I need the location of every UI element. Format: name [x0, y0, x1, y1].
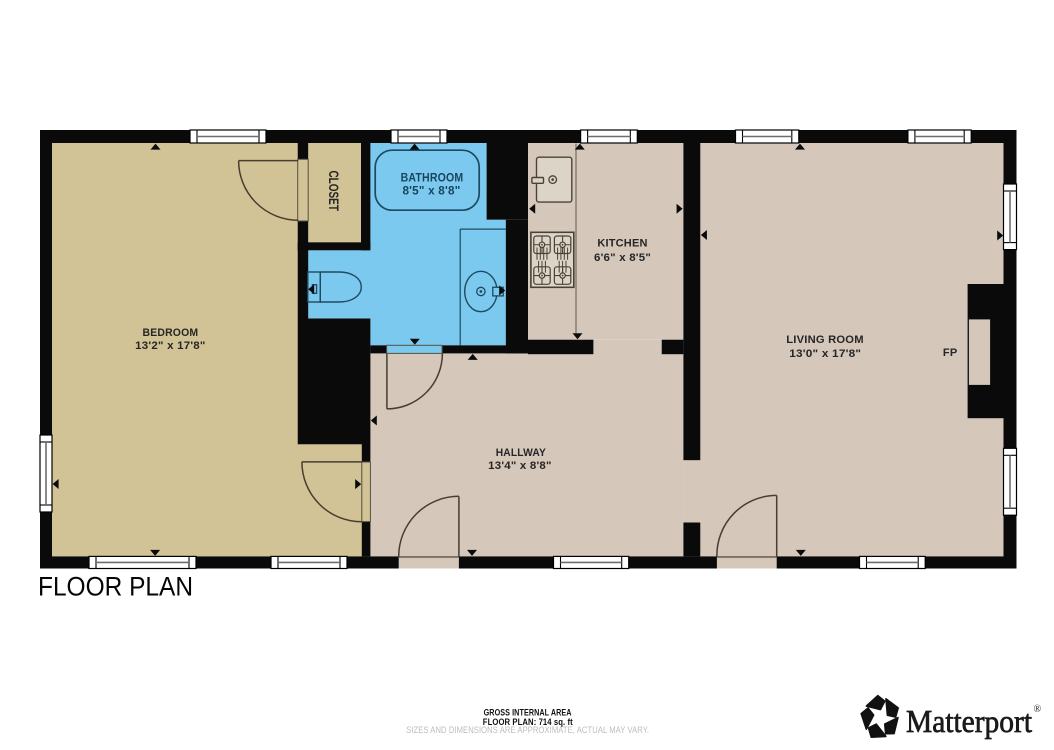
svg-text:13'2" x 17'8": 13'2" x 17'8": [135, 340, 205, 352]
svg-text:13'4" x 8'8": 13'4" x 8'8": [488, 460, 552, 472]
svg-text:FP: FP: [943, 347, 957, 359]
svg-text:LIVING ROOM: LIVING ROOM: [786, 334, 864, 346]
svg-text:6'6" x 8'5": 6'6" x 8'5": [594, 252, 651, 264]
svg-text:SIZES AND DIMENSIONS ARE APPRO: SIZES AND DIMENSIONS ARE APPROXIMATE, AC…: [406, 725, 649, 735]
svg-text:BEDROOM: BEDROOM: [143, 327, 199, 339]
svg-text:HALLWAY: HALLWAY: [496, 447, 547, 459]
svg-text:13'0" x 17'8": 13'0" x 17'8": [789, 348, 861, 360]
svg-text:CLOSET: CLOSET: [325, 170, 341, 211]
svg-text:BATHROOM: BATHROOM: [401, 171, 464, 185]
svg-text:®: ®: [1034, 704, 1042, 715]
svg-text:KITCHEN: KITCHEN: [597, 238, 647, 250]
svg-text:Matterport: Matterport: [906, 703, 1032, 739]
svg-text:8'5" x 8'8": 8'5" x 8'8": [402, 184, 460, 198]
svg-text:FLOOR PLAN: FLOOR PLAN: [38, 572, 193, 602]
